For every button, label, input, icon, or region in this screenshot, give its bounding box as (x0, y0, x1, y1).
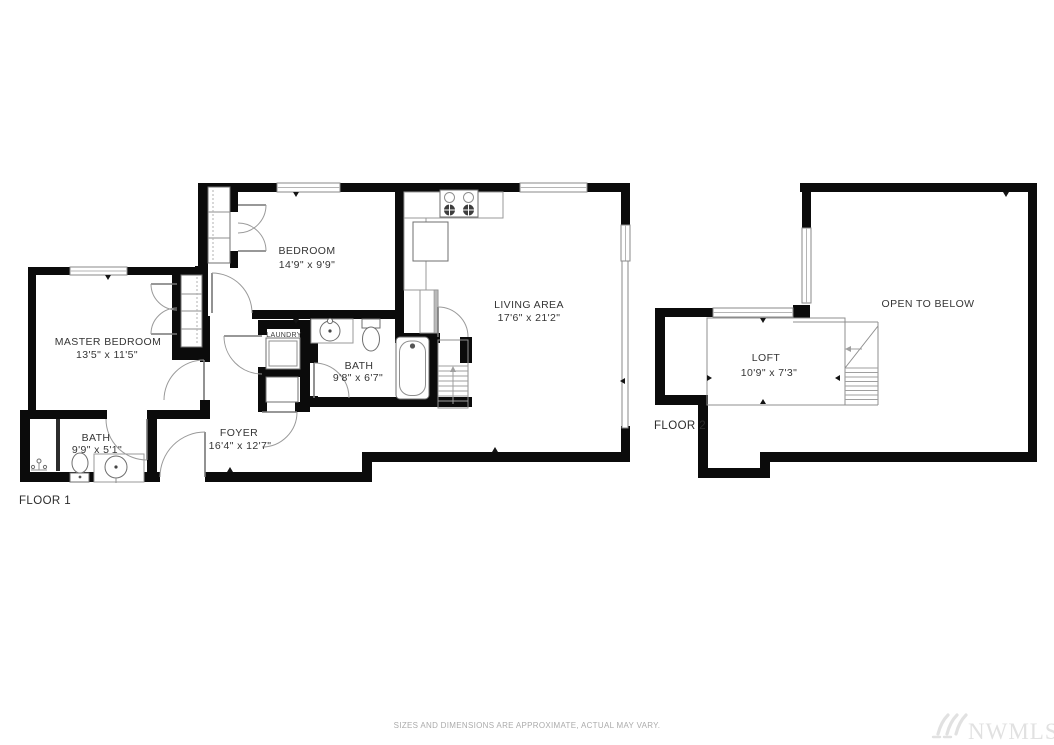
wall-segment (800, 183, 1037, 192)
footer: SIZES AND DIMENSIONS ARE APPROXIMATE, AC… (394, 715, 1054, 744)
wall-segment (362, 452, 630, 462)
refrigerator (413, 222, 448, 261)
wall-segment (230, 251, 238, 268)
wall-segment (200, 400, 210, 419)
hall-closet-shelf (266, 377, 298, 402)
room-dims-master-bedroom: 13'5" x 11'5" (76, 349, 138, 361)
wall-segment (198, 183, 208, 271)
toilet (70, 453, 89, 482)
wall-segment (340, 183, 520, 192)
room-dims-bath-main: 9'8" x 6'7" (333, 372, 383, 384)
washer (266, 338, 300, 369)
room-dims-foyer: 16'4" x 12'7" (209, 440, 272, 452)
door (212, 273, 252, 313)
window (621, 225, 630, 261)
door (224, 336, 262, 374)
room-label-bedroom: BEDROOM (278, 245, 335, 257)
room-label-loft: LOFT (752, 352, 781, 364)
toilet (362, 319, 380, 351)
wall-segment (1028, 183, 1037, 462)
floor1-plan: MASTER BEDROOM 13'5" x 11'5" BEDROOM 14'… (19, 183, 630, 507)
wall-segment (258, 402, 264, 412)
disclaimer-text: SIZES AND DIMENSIONS ARE APPROXIMATE, AC… (394, 721, 661, 730)
floor2-windows (713, 228, 811, 317)
wall-segment (655, 308, 713, 317)
wall-segment (802, 183, 811, 228)
stairs-up-arrow (450, 366, 456, 372)
room-label-bath-master: BATH (82, 432, 111, 444)
room-dims-bath-master: 9'9" x 5'1" (72, 444, 122, 456)
stove (440, 190, 478, 217)
room-label-laundry: LAUNDRY (266, 332, 301, 339)
kitchen-peninsula (420, 290, 438, 333)
wall-segment (20, 410, 30, 482)
door (438, 307, 468, 337)
room-label-open-to-below: OPEN TO BELOW (882, 298, 975, 310)
master-closet (181, 275, 202, 347)
wall-segment (395, 183, 404, 335)
door (238, 223, 266, 251)
floor2-title: FLOOR 2 (654, 420, 706, 432)
wall-segment (760, 452, 1037, 462)
door (238, 205, 266, 233)
wall-segment (147, 410, 157, 482)
window-glass-wall (622, 261, 628, 428)
stairs-direction-arrow (845, 346, 851, 352)
nwmls-logo-icon (933, 715, 966, 737)
wall-segment (205, 472, 372, 482)
room-label-living-area: LIVING AREA (494, 299, 564, 311)
window (520, 183, 587, 192)
bath-main-fixtures (311, 318, 429, 399)
floor2-walls (655, 183, 1037, 478)
floor-plan-page: { "floor1": { "label": "FLOOR 1", "rooms… (0, 0, 1054, 745)
wall-segment (310, 397, 472, 407)
nwmls-logo-text: NWMLS (968, 719, 1054, 744)
floor2-stairs (845, 322, 878, 405)
wall-segment (230, 186, 238, 212)
window (802, 228, 811, 303)
door (160, 432, 205, 477)
window (713, 308, 793, 317)
floor2-plan: LOFT 10'9" x 7'3" OPEN TO BELOW FLOOR 2 (654, 183, 1037, 478)
wall-segment (655, 308, 665, 405)
bedroom-closet (208, 187, 230, 263)
floor1-title: FLOOR 1 (19, 495, 71, 507)
wall-segment (252, 310, 402, 319)
floor-plan-canvas: MASTER BEDROOM 13'5" x 11'5" BEDROOM 14'… (0, 0, 1054, 745)
wall-segment (56, 419, 60, 471)
wall-segment (28, 267, 70, 275)
wall-segment (295, 402, 310, 412)
nwmls-watermark: NWMLS (933, 715, 1054, 744)
wall-segment (698, 468, 770, 478)
room-dims-living-area: 17'6" x 21'2" (498, 312, 561, 324)
wall-segment (621, 183, 630, 225)
room-label-master-bedroom: MASTER BEDROOM (55, 336, 162, 348)
bathtub (396, 337, 429, 399)
room-dims-loft: 10'9" x 7'3" (741, 367, 798, 379)
shower-fixture (31, 459, 47, 470)
window (277, 183, 340, 192)
wall-segment (793, 305, 810, 318)
wall-segment (698, 395, 708, 478)
room-label-bath-main: BATH (345, 360, 374, 372)
loft-boundary (707, 318, 878, 405)
door (164, 360, 204, 400)
room-dims-bedroom: 14'9" x 9'9" (279, 259, 336, 271)
wall-segment (28, 267, 36, 412)
window (70, 267, 127, 275)
room-label-foyer: FOYER (220, 427, 258, 439)
wall-segment (460, 337, 472, 363)
